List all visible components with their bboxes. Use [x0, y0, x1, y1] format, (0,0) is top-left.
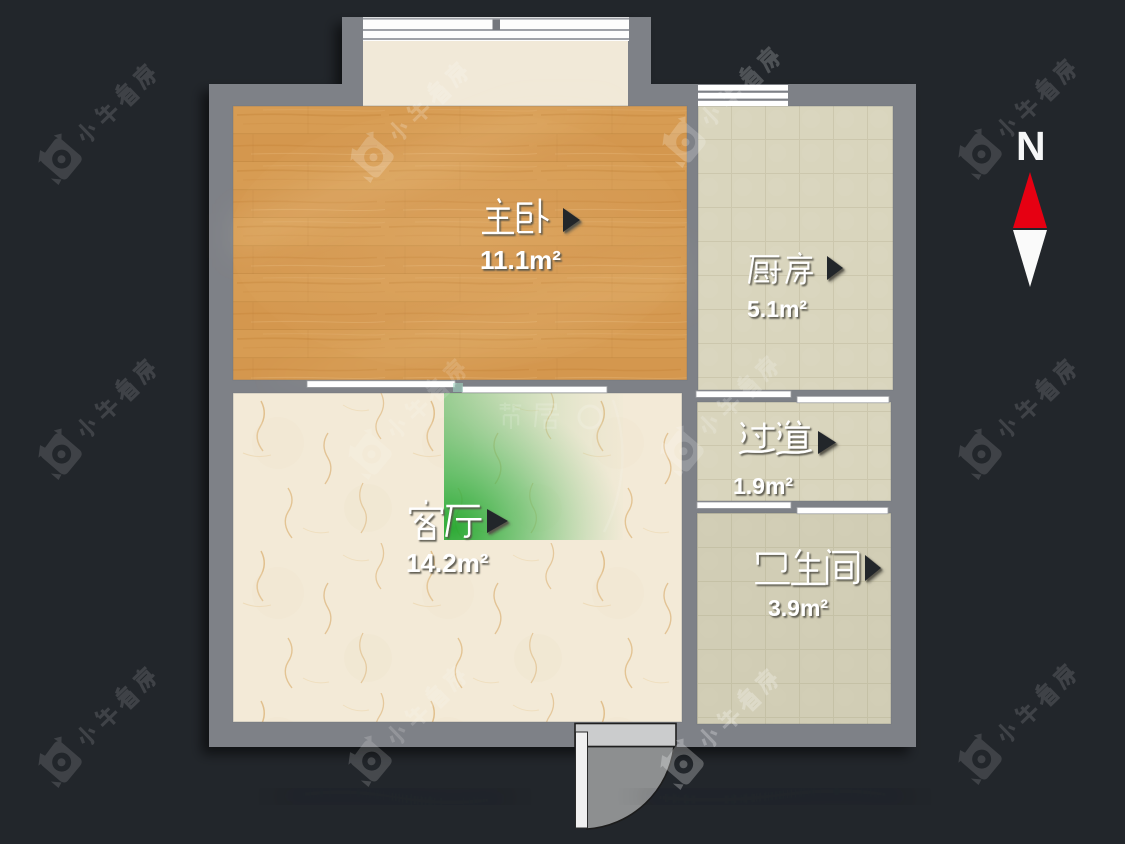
svg-text:5.1m²: 5.1m² [747, 296, 807, 322]
svg-text:14.2m²: 14.2m² [406, 548, 489, 578]
svg-text:1.9m²: 1.9m² [733, 473, 793, 499]
svg-text:11.1m²: 11.1m² [480, 245, 561, 275]
svg-text:N: N [1016, 123, 1046, 169]
svg-text:3.9m²: 3.9m² [768, 595, 828, 621]
